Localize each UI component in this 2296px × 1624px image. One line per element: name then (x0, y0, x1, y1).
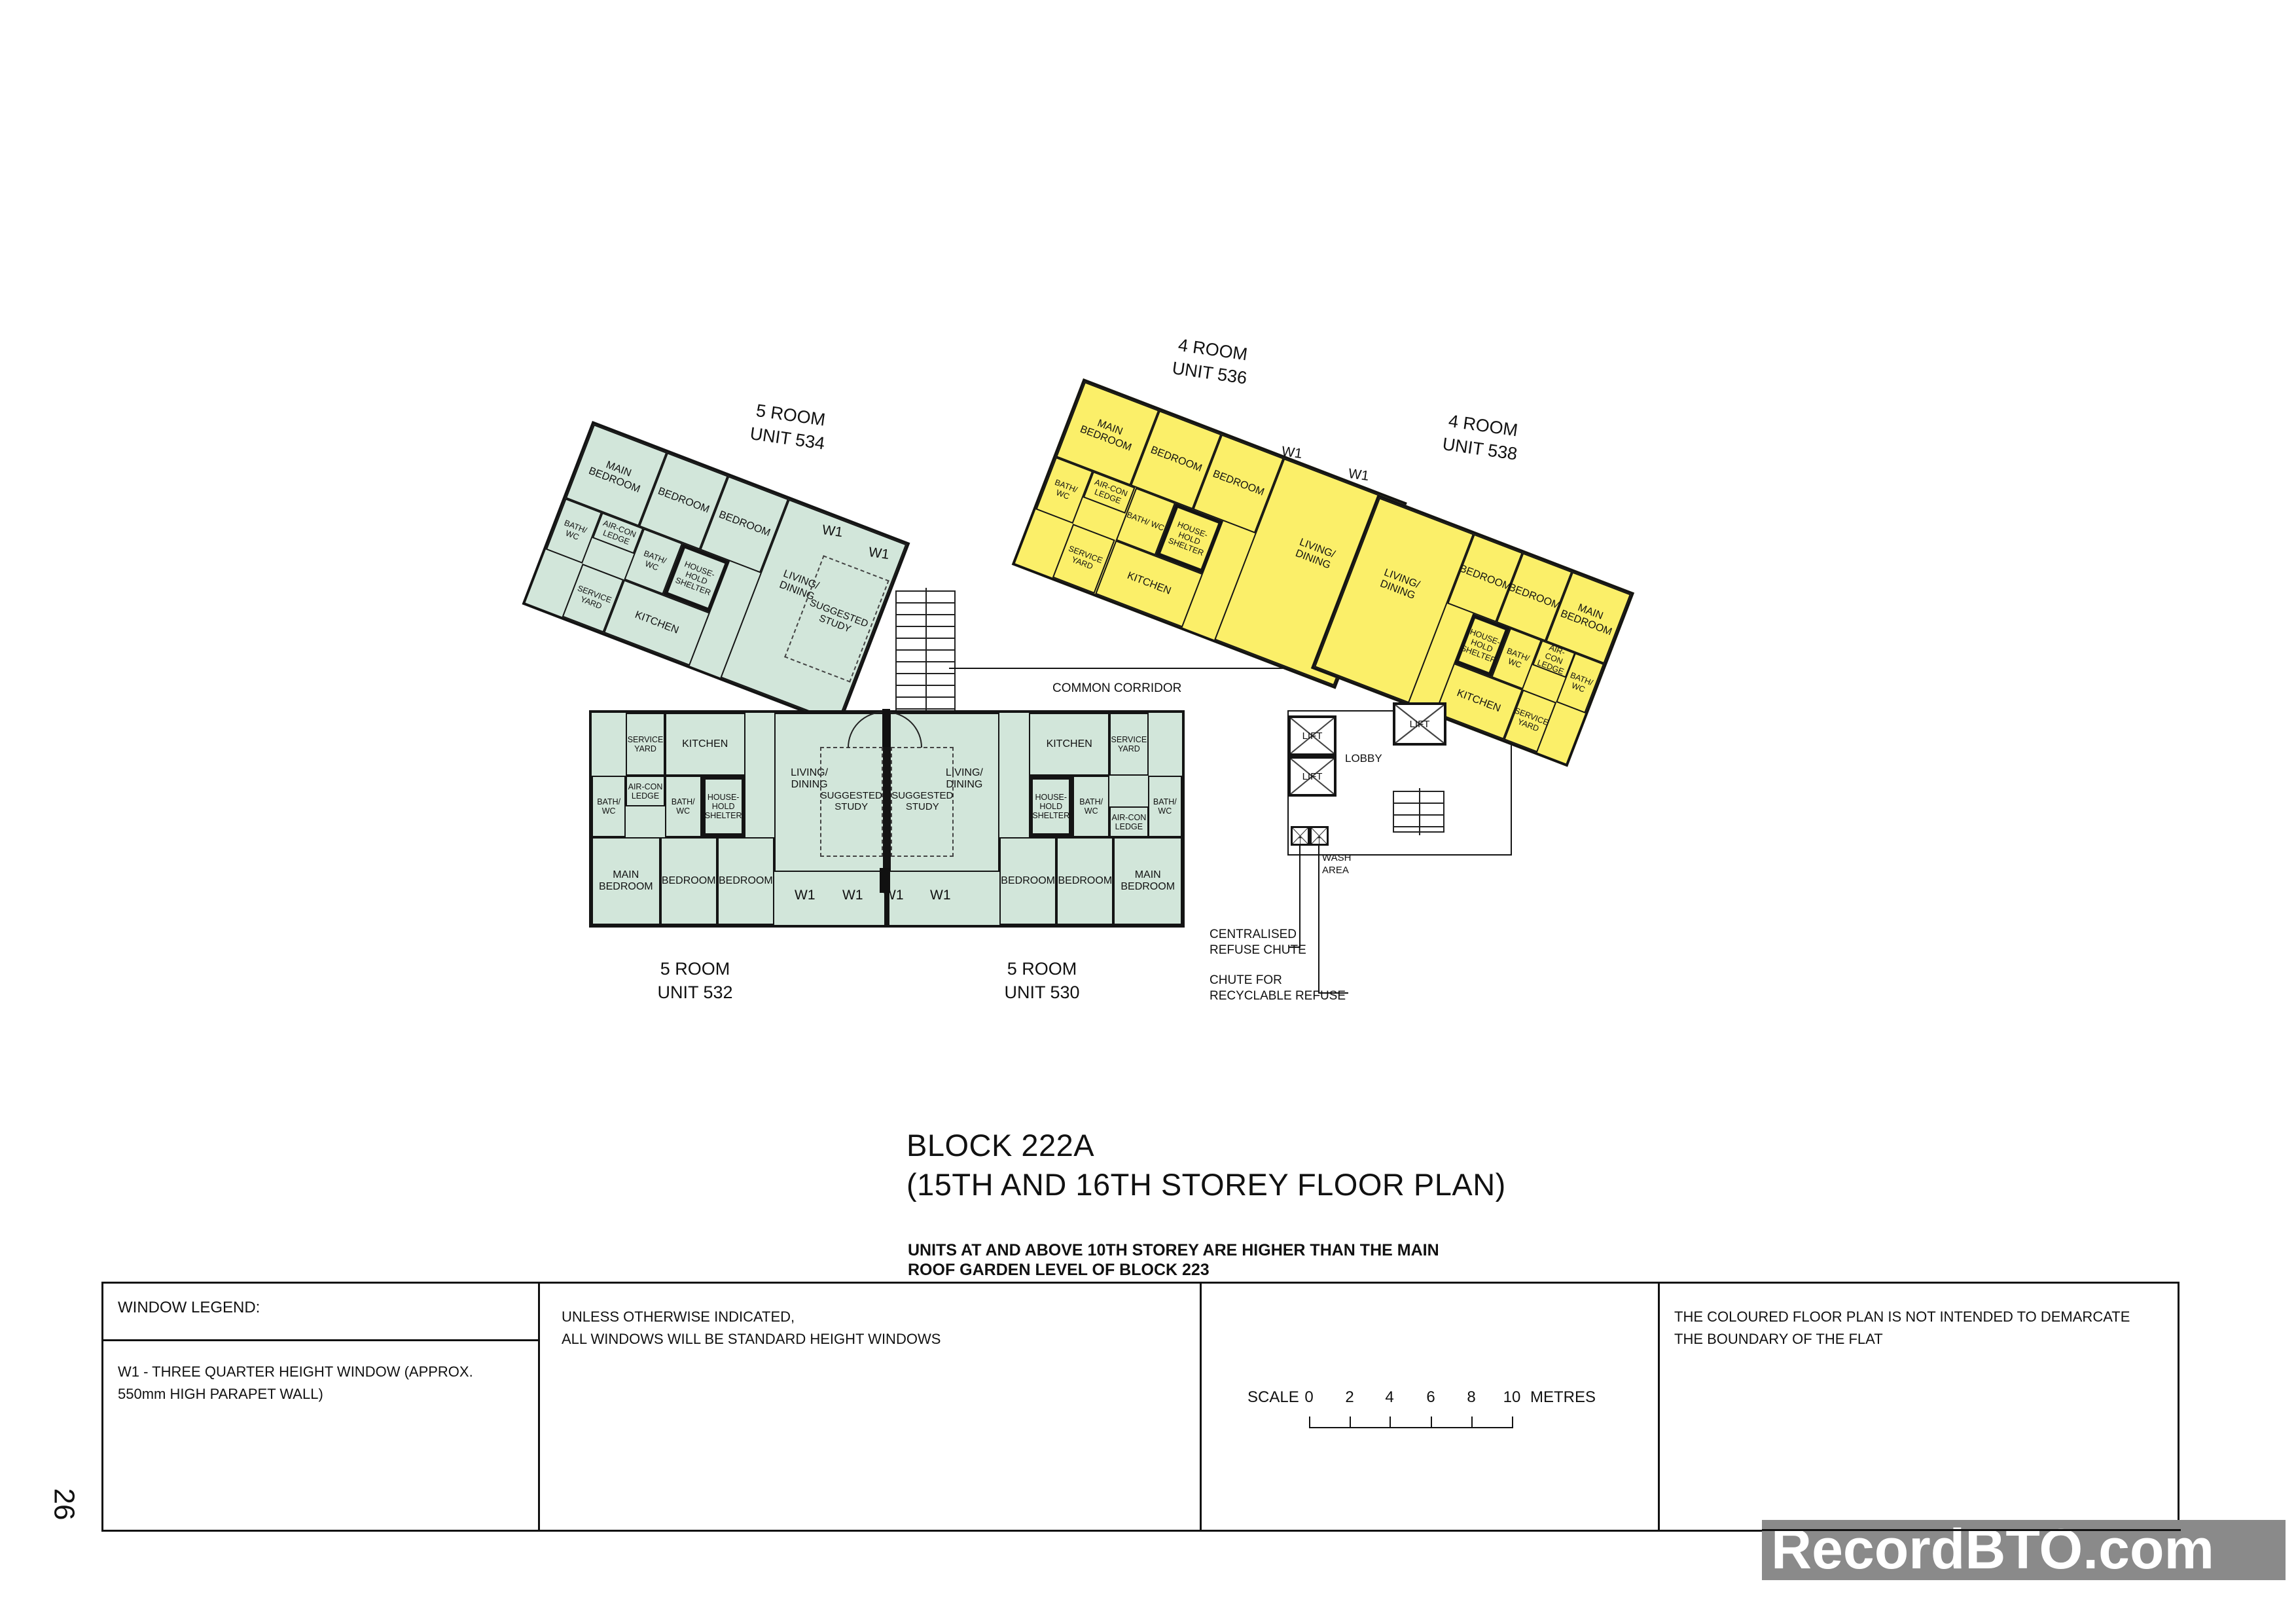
corridor-line-top (949, 668, 1286, 669)
stair-mid-line (1419, 788, 1420, 835)
scale-bar-tick (1390, 1416, 1391, 1427)
room-kitchen: KITCHEN (665, 713, 745, 776)
window-w1-label: W1 (867, 545, 890, 563)
title-note-line2: ROOF GARDEN LEVEL OF BLOCK 223 (908, 1261, 1210, 1280)
window-w1-label: W1 (930, 888, 951, 903)
unit-534-label: 5 ROOM UNIT 534 (742, 397, 836, 457)
table-divider (538, 1284, 540, 1530)
centralised-refuse-chute-label: CENTRALISED REFUSE CHUTE (1210, 927, 1306, 958)
room-household-shelter: HOUSE- HOLD SHELTER (1029, 776, 1073, 837)
windows-note-line1: UNLESS OTHERWISE INDICATED, (562, 1306, 941, 1328)
table-bottom-border-over-watermark (1762, 1529, 2181, 1531)
room-bedroom: BEDROOM (717, 837, 774, 925)
window-w1-label: W1 (883, 888, 904, 903)
scale-tick-4: 4 (1385, 1388, 1393, 1407)
label-line: RECYCLABLE REFUSE (1210, 988, 1346, 1004)
page-number-text: 26 (47, 1489, 80, 1521)
label-line: CHUTE FOR (1210, 973, 1346, 988)
scale-bar (1309, 1427, 1513, 1428)
scale-tick-6: 6 (1426, 1388, 1435, 1407)
room-kitchen: KITCHEN (1029, 713, 1109, 776)
window-w1-label: W1 (1280, 444, 1303, 462)
label-line: CENTRALISED (1210, 927, 1306, 943)
lobby-label: LOBBY (1345, 751, 1382, 765)
table-divider (1658, 1284, 1660, 1530)
recyclable-chute-box: ↑ (1310, 826, 1329, 846)
floor-plan-sheet: MAIN BEDROOM BEDROOM BEDROOM LIVING/ DIN… (0, 0, 2296, 1624)
leader-line (1318, 846, 1319, 994)
room-aircon-ledge: AIR-CON LEDGE (1109, 806, 1148, 837)
room-bath-wc: BATH/ WC (665, 776, 702, 837)
label-line: REFUSE CHUTE (1210, 943, 1306, 958)
coloured-plan-note: THE COLOURED FLOOR PLAN IS NOT INTENDED … (1674, 1306, 2130, 1350)
unit-530-label: 5 ROOM UNIT 530 (996, 957, 1088, 1005)
windows-note-line2: ALL WINDOWS WILL BE STANDARD HEIGHT WIND… (562, 1328, 941, 1350)
window-w1-label: W1 (795, 888, 816, 903)
scale-bar-tick (1431, 1416, 1432, 1427)
window-w1-label: W1 (821, 522, 844, 541)
page-number: 26 (41, 1473, 86, 1536)
room-bath-wc: BATH/ WC (1073, 776, 1109, 837)
stair-mid-line (925, 588, 927, 719)
recyclable-refuse-chute-label: CHUTE FOR RECYCLABLE REFUSE (1210, 973, 1346, 1004)
scale-bar-tick (1471, 1416, 1473, 1427)
window-legend-title: WINDOW LEGEND: (118, 1295, 260, 1320)
room-bath-wc: BATH/ WC (592, 776, 626, 837)
room-bedroom: BEDROOM (1056, 837, 1113, 925)
scale-tick-8: 8 (1467, 1388, 1475, 1407)
staircase-upper (895, 590, 956, 716)
lift-label: LIFT (1302, 771, 1323, 782)
unit-534-plan: MAIN BEDROOM BEDROOM BEDROOM LIVING/ DIN… (522, 421, 910, 726)
room-service-yard: SERVICE YARD (626, 713, 664, 776)
room-household-shelter: HOUSE- HOLD SHELTER (702, 776, 745, 837)
window-w1-label: W1 (842, 888, 863, 903)
unit-532-label: 5 ROOM UNIT 532 (649, 957, 741, 1005)
unit-number: UNIT 530 (996, 981, 1088, 1004)
lift-shaft: LIFT (1288, 715, 1336, 756)
unit-536-label: 4 ROOM UNIT 536 (1164, 332, 1259, 391)
refuse-chute-box: ↑ (1291, 826, 1310, 846)
suggested-study-area: SUGGESTED STUDY (820, 747, 883, 857)
room-main-bedroom: MAIN BEDROOM (1113, 837, 1182, 925)
scale-tick-10: 10 (1503, 1388, 1521, 1407)
scale-unit: METRES (1530, 1388, 1596, 1407)
scale-bar-tick (1350, 1416, 1351, 1427)
common-corridor-label: COMMON CORRIDOR (1052, 681, 1181, 696)
coloured-note-line1: THE COLOURED FLOOR PLAN IS NOT INTENDED … (1674, 1306, 2130, 1328)
suggested-study-area: SUGGESTED STUDY (891, 747, 954, 857)
storey-title: (15TH AND 16TH STOREY FLOOR PLAN) (906, 1166, 1506, 1202)
legend-table: WINDOW LEGEND: W1 - THREE QUARTER HEIGHT… (101, 1282, 2179, 1532)
room-bedroom: BEDROOM (999, 837, 1056, 925)
block-title: BLOCK 222A (906, 1127, 1094, 1163)
unit-type: 5 ROOM (649, 957, 741, 981)
coloured-note-line2: THE BOUNDARY OF THE FLAT (1674, 1328, 2130, 1350)
window-legend-body: W1 - THREE QUARTER HEIGHT WINDOW (APPROX… (118, 1361, 511, 1405)
unit-number: UNIT 532 (649, 981, 741, 1004)
scale-tick-0: 0 (1304, 1388, 1313, 1407)
staircase-lobby (1393, 791, 1444, 833)
wall-post (882, 709, 890, 747)
title-note-line1: UNITS AT AND ABOVE 10TH STOREY ARE HIGHE… (908, 1241, 1439, 1260)
scale-tick-2: 2 (1345, 1388, 1354, 1407)
room-bedroom: BEDROOM (660, 837, 717, 925)
scale-label: SCALE (1247, 1388, 1299, 1407)
lift-shaft: LIFT (1393, 702, 1446, 746)
room-service-yard: SERVICE YARD (1109, 713, 1148, 776)
room-aircon-ledge: AIR-CON LEDGE (626, 776, 664, 806)
lift-label: LIFT (1410, 719, 1430, 730)
unit-type: 5 ROOM (996, 957, 1088, 981)
unit-538-label: 4 ROOM UNIT 538 (1435, 408, 1529, 467)
scale-bar-tick (1512, 1416, 1513, 1427)
window-legend-header-divider (103, 1339, 538, 1341)
windows-note: UNLESS OTHERWISE INDICATED, ALL WINDOWS … (562, 1306, 941, 1350)
lift-shaft: LIFT (1288, 756, 1336, 797)
wash-area-label: WASH AREA (1322, 852, 1364, 877)
scale-bar-tick (1309, 1416, 1310, 1427)
lift-label: LIFT (1302, 731, 1323, 742)
table-divider (1200, 1284, 1202, 1530)
window-w1-label: W1 (1347, 466, 1370, 484)
room-main-bedroom: MAIN BEDROOM (592, 837, 660, 925)
room-bath-wc: BATH/ WC (1148, 776, 1182, 837)
